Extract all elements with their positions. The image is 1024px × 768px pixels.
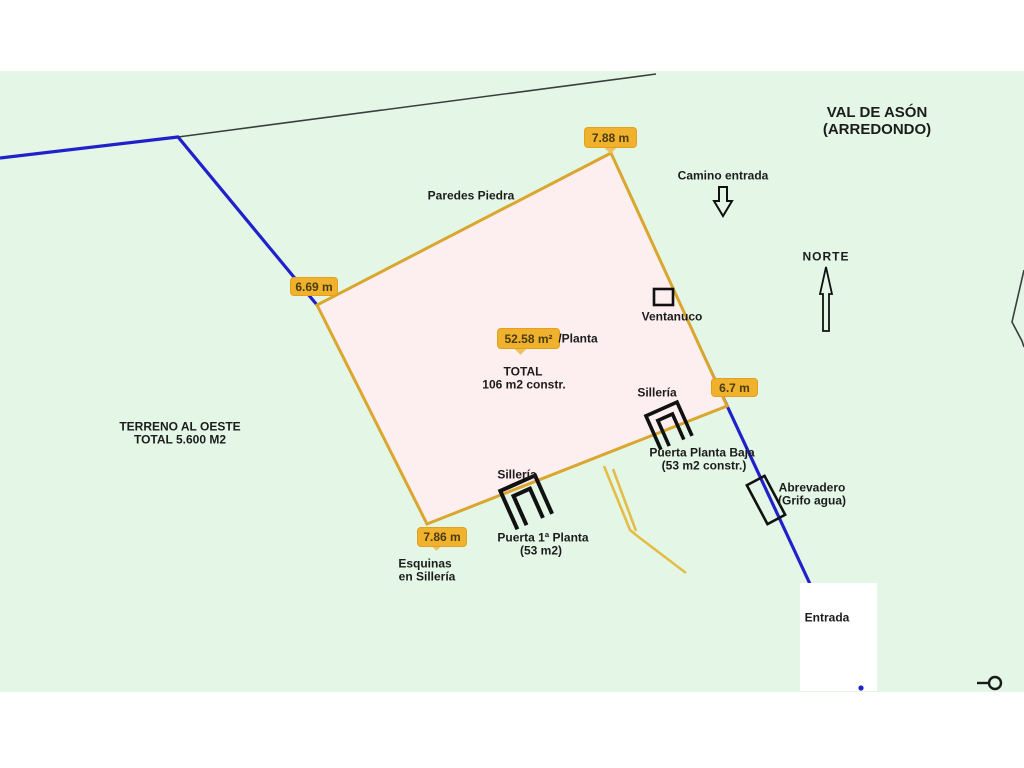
- label-entrada: Entrada: [805, 611, 850, 624]
- region-title-line2: (ARREDONDO): [823, 122, 931, 139]
- label-abrevadero-line2: (Grifo agua): [778, 494, 846, 507]
- entrada-point: [858, 685, 863, 690]
- label-total-line2: 106 m2 constr.: [482, 378, 565, 391]
- label-puerta-baja-line2: (53 m2 constr.): [662, 459, 747, 472]
- area-badge-suffix: /Planta: [558, 332, 597, 345]
- label-terreno-line2: TOTAL 5.600 M2: [134, 433, 226, 446]
- entrada-area: [800, 583, 877, 691]
- measure-badge-right: 6.7 m: [711, 378, 758, 397]
- label-paredes-piedra: Paredes Piedra: [428, 189, 515, 202]
- label-silleria-right: Sillería: [637, 386, 676, 399]
- label-esquinas-line2: en Sillería: [399, 570, 456, 583]
- label-puerta-1a-line2: (53 m2): [520, 544, 562, 557]
- label-ventanuco: Ventanuco: [642, 310, 703, 323]
- region-title-line1: VAL DE ASÓN: [827, 105, 928, 122]
- label-camino-entrada: Camino entrada: [678, 169, 769, 182]
- site-plan-map: VAL DE ASÓN (ARREDONDO) Paredes Piedra C…: [0, 0, 1024, 768]
- label-silleria-bottom: Sillería: [497, 468, 536, 481]
- area-badge: 52.58 m²: [497, 328, 560, 349]
- measure-badge-left: 6.69 m: [290, 277, 338, 296]
- measure-badge-top: 7.88 m: [584, 127, 637, 148]
- measure-badge-bottom: 7.86 m: [417, 527, 467, 547]
- label-norte: NORTE: [803, 250, 850, 263]
